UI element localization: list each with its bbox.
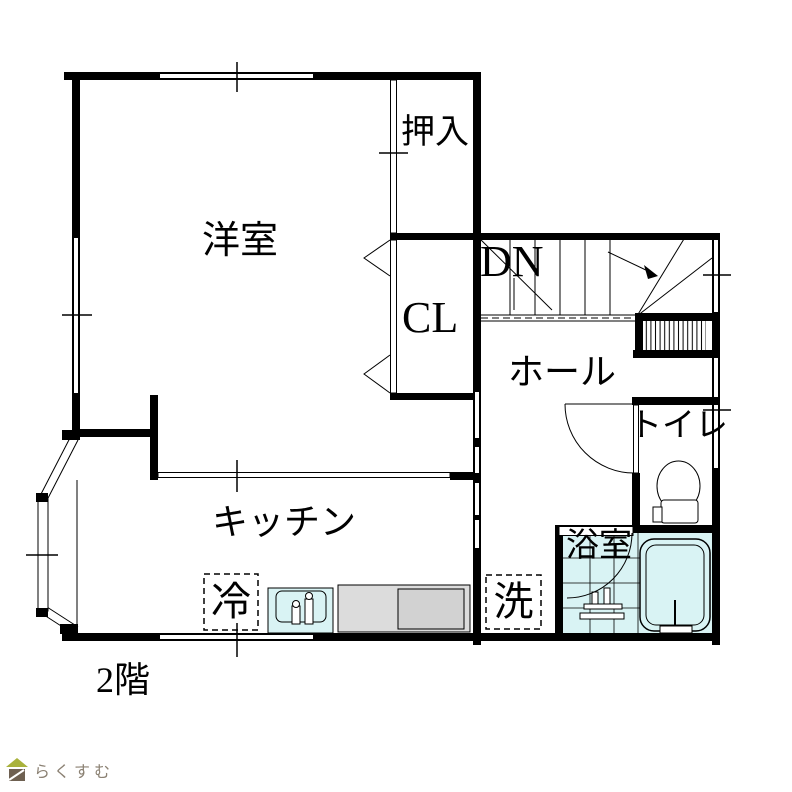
bifold-door-marks <box>364 240 390 393</box>
bathtub <box>640 539 710 633</box>
label-stairs-down: DN <box>480 240 544 284</box>
logo-text: らくすむ <box>34 758 114 782</box>
stove <box>398 589 464 629</box>
label-bathroom: 浴室 <box>566 530 632 563</box>
bay-window <box>36 430 78 634</box>
label-western-room: 洋室 <box>202 222 278 260</box>
label-hall: ホール <box>508 354 616 390</box>
label-refrigerator: 冷 <box>204 574 258 630</box>
stair-direction-arrowhead <box>644 265 658 279</box>
label-kitchen: キッチン <box>212 504 356 540</box>
stair-railing <box>633 313 720 358</box>
house-logo-icon <box>6 758 28 782</box>
toilet-fixture <box>653 461 700 523</box>
floor-label: 2階 <box>96 662 150 698</box>
rakusumu-logo: らくすむ <box>6 758 114 782</box>
floor-plan-canvas: 洋室 押入 CL DN ホール トイレ 浴室 キッチン 冷 洗 2階 らくすむ <box>0 0 792 792</box>
toilet-door <box>565 404 634 473</box>
label-toilet: トイレ <box>629 410 728 443</box>
label-washer: 洗 <box>486 575 541 629</box>
label-cl-closet: CL <box>402 296 458 340</box>
label-oshiire-closet: 押入 <box>401 116 469 150</box>
